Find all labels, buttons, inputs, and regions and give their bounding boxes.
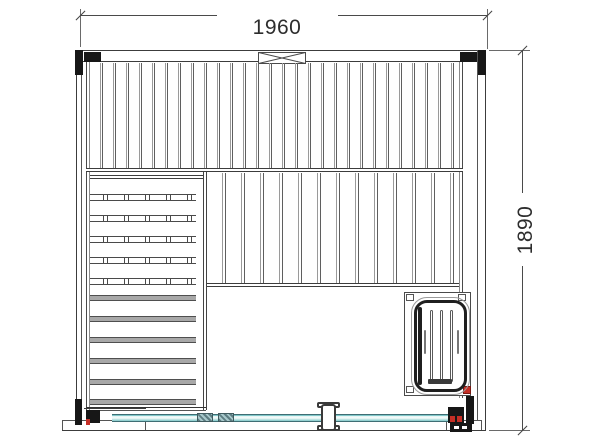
glass-front-panel xyxy=(112,414,463,422)
left-bench-slat xyxy=(90,257,196,264)
height-dimension-label: 1890 xyxy=(514,180,538,280)
corner-bracket-top-right-icon xyxy=(460,52,477,62)
door-latch xyxy=(197,413,213,422)
corner-bracket-top-left-icon xyxy=(75,50,83,75)
left-bench-board xyxy=(90,337,196,343)
corner-bracket-top-left-icon xyxy=(84,52,101,62)
door-jamb-line xyxy=(84,408,146,409)
right-wall xyxy=(477,50,486,430)
left-bench-slat xyxy=(90,215,196,222)
left-bench-top-rail xyxy=(90,175,203,179)
left-bench-board xyxy=(90,295,196,301)
heater-grille-slat xyxy=(440,310,443,382)
left-bench-slat xyxy=(90,194,196,201)
left-wall xyxy=(76,50,82,426)
left-bench-board xyxy=(90,399,196,405)
heater-grille-slat-short xyxy=(424,330,426,354)
hinge-marker-right xyxy=(450,416,455,422)
height-dimension-line-top xyxy=(522,50,523,193)
left-bench-board xyxy=(90,379,196,385)
bench-divider-line xyxy=(203,172,207,410)
heater-control-bar xyxy=(428,379,452,384)
width-dimension-label: 1960 xyxy=(217,16,337,40)
heater-grille-slat xyxy=(430,310,433,382)
guard-post xyxy=(406,294,414,301)
left-bench-slat xyxy=(90,278,196,285)
roller-slot xyxy=(462,426,467,429)
corner-bracket-bottom-right-icon xyxy=(466,396,474,424)
door-latch xyxy=(218,413,234,422)
middle-bench-boards xyxy=(207,173,459,283)
hinge-marker-right xyxy=(457,416,462,422)
width-dimension-line-left xyxy=(80,15,217,16)
left-bench-board xyxy=(90,316,196,322)
left-bench-slat xyxy=(90,236,196,243)
corner-bracket-bottom-left-icon xyxy=(75,399,82,425)
back-bench-boards xyxy=(90,63,459,168)
height-extension-line-bottom xyxy=(489,430,530,431)
bottom-outer-line xyxy=(62,430,486,431)
width-dimension-line-right xyxy=(338,15,487,16)
back-bench-front-rail xyxy=(86,168,463,172)
hinge-marker-left xyxy=(86,419,90,425)
middle-bench-front-rail xyxy=(207,283,459,287)
sauna-technical-drawing: 1960 1890 xyxy=(0,0,610,448)
corner-bracket-top-right-icon xyxy=(478,50,486,75)
height-dimension-line-bottom xyxy=(522,266,523,430)
door-handle xyxy=(321,404,336,431)
left-bench-board xyxy=(90,358,196,364)
height-extension-line-top xyxy=(489,50,530,51)
heater-edge-accent xyxy=(418,307,422,385)
roller-slot xyxy=(454,426,459,429)
heater-grille-slat xyxy=(450,310,453,382)
heater-grille-slat-short xyxy=(457,330,459,354)
